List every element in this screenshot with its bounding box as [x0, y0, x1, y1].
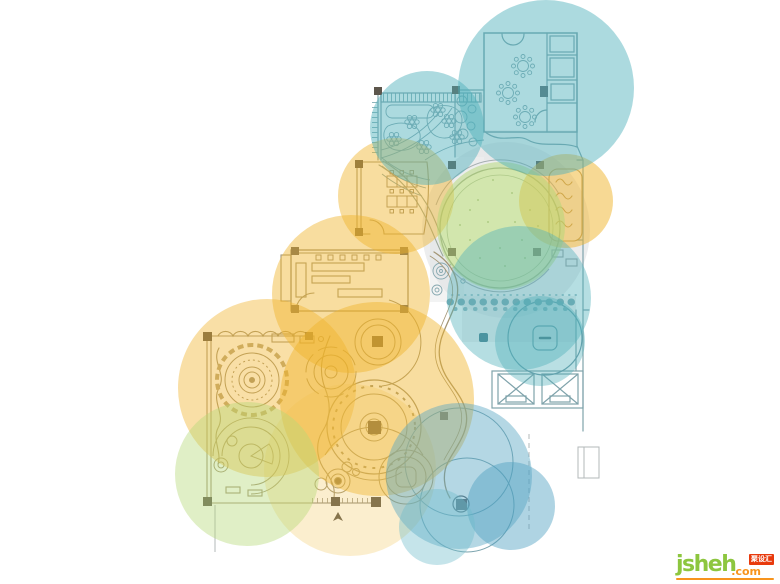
watermark-underline	[676, 578, 774, 580]
highlight-circle-teal-1	[458, 0, 634, 176]
highlight-circle-green-2	[175, 402, 319, 546]
floor-plan-svg	[0, 0, 780, 584]
overlay-circles	[175, 0, 634, 565]
highlight-circle-blue-3	[399, 489, 475, 565]
watermark-logo: jsheh 聚设汇 .com	[676, 554, 774, 580]
floor-plan-canvas	[0, 0, 780, 584]
watermark-brand-text: jsheh	[676, 552, 735, 577]
highlight-circle-teal-4	[495, 296, 585, 386]
watermark-badge: 聚设汇	[749, 554, 774, 565]
highlight-circle-blue-2	[467, 462, 555, 550]
watermark-tld-text: .com	[731, 565, 761, 578]
highlight-circle-teal-2	[370, 71, 484, 185]
